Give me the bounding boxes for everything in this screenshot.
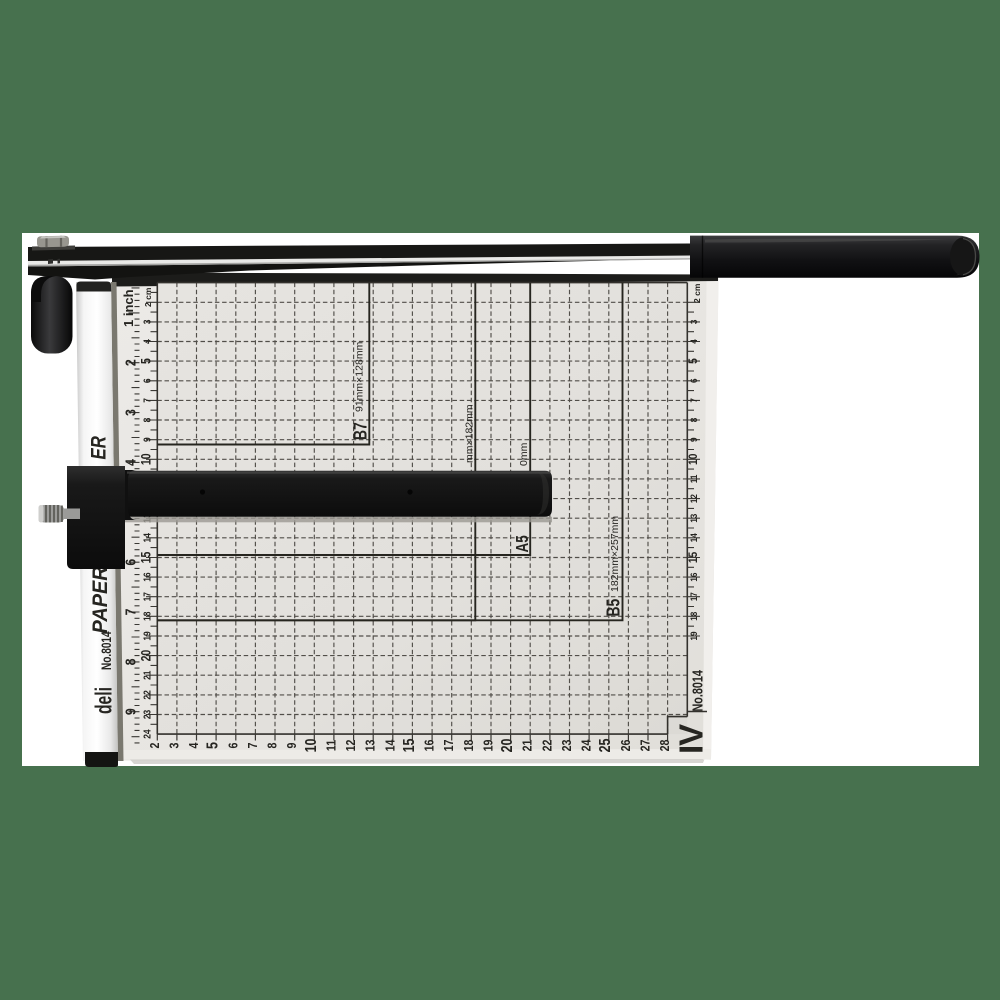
- svg-text:7: 7: [123, 609, 139, 616]
- svg-text:7: 7: [688, 398, 699, 403]
- svg-text:3: 3: [142, 320, 154, 325]
- svg-text:B7: B7: [350, 422, 370, 440]
- svg-text:0mm: 0mm: [518, 442, 530, 466]
- svg-text:15: 15: [138, 552, 154, 564]
- svg-text:18: 18: [688, 612, 699, 621]
- svg-text:B5: B5: [604, 599, 624, 617]
- svg-text:11: 11: [688, 475, 699, 484]
- svg-text:10: 10: [687, 454, 700, 465]
- svg-text:21: 21: [521, 739, 535, 751]
- svg-text:8: 8: [142, 418, 154, 423]
- svg-text:19: 19: [482, 739, 496, 751]
- svg-text:19: 19: [688, 631, 699, 640]
- svg-text:7: 7: [142, 398, 154, 403]
- svg-text:IV: IV: [673, 724, 710, 754]
- svg-text:10: 10: [302, 739, 320, 753]
- svg-text:8: 8: [123, 658, 139, 665]
- svg-text:1 inch: 1 inch: [121, 289, 136, 327]
- svg-text:17: 17: [442, 740, 456, 752]
- svg-text:A5: A5: [513, 535, 532, 552]
- svg-text:16: 16: [423, 739, 437, 751]
- svg-text:10: 10: [138, 453, 154, 465]
- svg-text:4: 4: [123, 459, 139, 466]
- svg-text:9: 9: [142, 437, 154, 442]
- svg-text:21: 21: [142, 670, 154, 680]
- svg-text:5: 5: [138, 358, 154, 364]
- svg-text:9: 9: [123, 708, 139, 715]
- svg-text:No.8014: No.8014: [98, 631, 114, 670]
- svg-text:15: 15: [401, 739, 419, 753]
- svg-text:deli: deli: [92, 687, 118, 714]
- svg-text:18: 18: [142, 612, 154, 621]
- svg-text:5: 5: [687, 358, 700, 364]
- svg-text:4: 4: [688, 339, 699, 344]
- svg-text:PAPER: PAPER: [89, 566, 113, 633]
- svg-text:182mm×257mm: 182mm×257mm: [609, 516, 621, 592]
- svg-text:22: 22: [142, 690, 154, 699]
- svg-text:20: 20: [499, 739, 517, 753]
- svg-text:22: 22: [541, 740, 555, 752]
- svg-text:4: 4: [187, 742, 201, 748]
- svg-text:3: 3: [688, 320, 699, 325]
- svg-text:2: 2: [123, 359, 139, 366]
- svg-text:6: 6: [227, 742, 241, 748]
- svg-text:12: 12: [688, 494, 699, 503]
- svg-text:19: 19: [142, 631, 154, 640]
- svg-text:9: 9: [688, 437, 699, 442]
- svg-text:18: 18: [462, 739, 476, 751]
- svg-text:8: 8: [266, 742, 280, 748]
- svg-text:23: 23: [142, 710, 154, 719]
- svg-text:mm×182mm: mm×182mm: [463, 404, 475, 463]
- svg-text:4: 4: [142, 339, 154, 344]
- svg-text:5: 5: [204, 742, 222, 749]
- svg-text:8: 8: [688, 418, 699, 423]
- svg-text:17: 17: [688, 592, 699, 601]
- svg-text:2: 2: [148, 743, 162, 749]
- svg-text:25: 25: [597, 739, 615, 753]
- svg-text:26: 26: [619, 739, 633, 751]
- svg-text:24: 24: [580, 739, 594, 751]
- svg-text:12: 12: [344, 740, 358, 752]
- svg-text:14: 14: [688, 533, 699, 542]
- svg-text:2 cm: 2 cm: [143, 287, 153, 307]
- svg-text:3: 3: [123, 409, 139, 416]
- svg-text:6: 6: [142, 378, 154, 383]
- svg-text:28: 28: [658, 739, 672, 751]
- svg-text:20: 20: [138, 650, 154, 662]
- svg-text:9: 9: [285, 742, 299, 748]
- svg-text:6: 6: [688, 378, 699, 383]
- svg-text:3: 3: [168, 742, 182, 748]
- svg-text:16: 16: [688, 573, 699, 582]
- svg-text:91mm×128mm: 91mm×128mm: [353, 341, 365, 412]
- svg-text:13: 13: [688, 514, 699, 523]
- svg-text:15: 15: [687, 552, 700, 563]
- svg-text:16: 16: [142, 572, 154, 581]
- svg-text:14: 14: [384, 739, 398, 751]
- svg-text:23: 23: [560, 739, 574, 751]
- svg-text:No.8014: No.8014: [689, 670, 706, 712]
- svg-text:13: 13: [364, 739, 378, 751]
- svg-text:14: 14: [142, 533, 154, 543]
- svg-text:11: 11: [325, 739, 339, 751]
- svg-text:17: 17: [142, 592, 154, 601]
- svg-text:2 cm: 2 cm: [692, 283, 702, 303]
- svg-text:24: 24: [142, 729, 154, 739]
- svg-text:27: 27: [639, 740, 653, 752]
- svg-text:7: 7: [246, 743, 260, 749]
- svg-text:ER: ER: [88, 436, 111, 460]
